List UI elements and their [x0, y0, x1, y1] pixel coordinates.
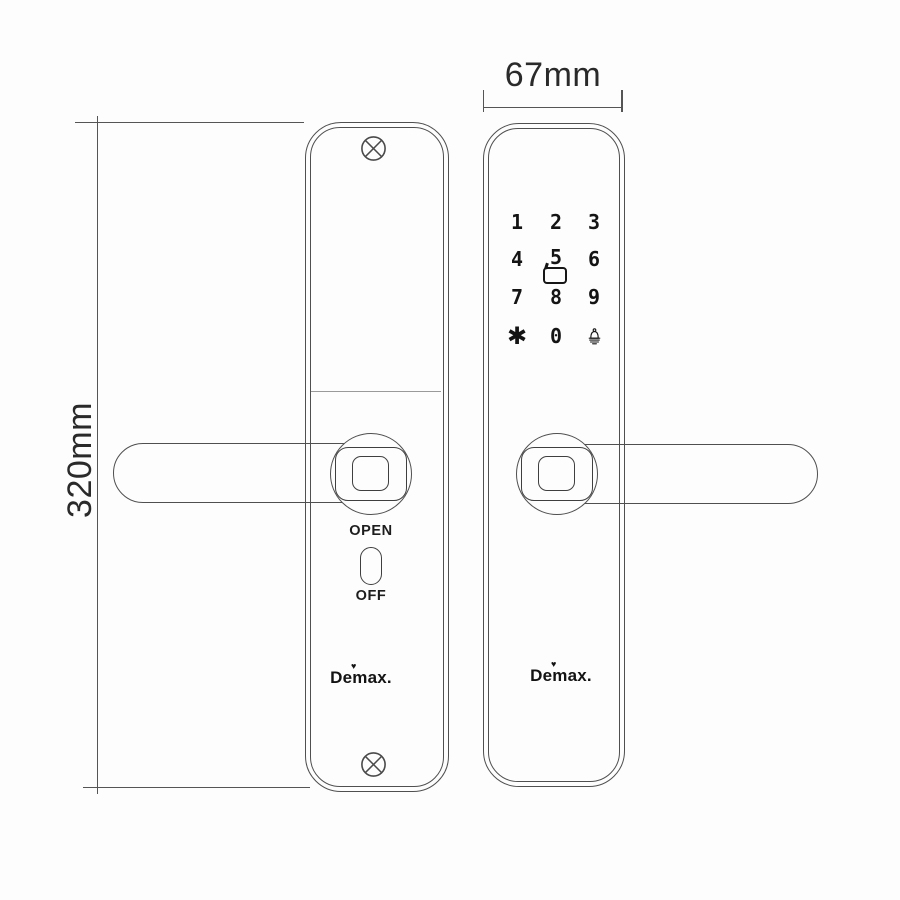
keypad-key-0: 0 [539, 321, 573, 351]
keypad-key-8: 8 [539, 282, 573, 312]
width-tick-right [621, 90, 623, 112]
keypad-key-star: ✱ [500, 321, 534, 351]
keypad-key-3: 3 [577, 207, 611, 237]
logo-heart-icon: ♥ [551, 659, 557, 669]
keypad-key-2: 2 [539, 207, 573, 237]
height-extension-line-top [75, 122, 304, 124]
doorbell-icon [585, 327, 604, 346]
keypad-key-7: 7 [500, 282, 534, 312]
brand-logo-text: Demax. [530, 666, 592, 685]
fingerprint-sensor [538, 456, 575, 491]
brand-logo-front: ♥Demax. [521, 666, 601, 686]
brand-logo-back: ♥Demax. [321, 668, 401, 688]
width-dimension-line [483, 107, 622, 109]
height-dimension-label: 320mm [60, 400, 100, 520]
keypad-key-9: 9 [577, 282, 611, 312]
width-dimension-label: 67mm [493, 56, 613, 95]
privacy-toggle-switch [360, 547, 382, 585]
screw-cross-icon [360, 135, 387, 162]
fingerprint-sensor [352, 456, 389, 491]
screw-cross-icon [360, 751, 387, 778]
height-extension-line-bottom [83, 787, 310, 789]
back-panel-divider-line [311, 391, 441, 392]
brand-logo-text: Demax. [330, 668, 392, 687]
keypad-key-1: 1 [500, 207, 534, 237]
toggle-open-label: OPEN [331, 523, 411, 539]
toggle-off-label: OFF [331, 588, 411, 604]
keypad-key-6: 6 [577, 244, 611, 274]
logo-heart-icon: ♥ [351, 661, 357, 671]
lock-dimension-diagram: 320mm 67mm OPEN OFF ♥Demax. [0, 0, 900, 900]
keypad-key-4: 4 [500, 244, 534, 274]
width-tick-left [483, 90, 485, 112]
